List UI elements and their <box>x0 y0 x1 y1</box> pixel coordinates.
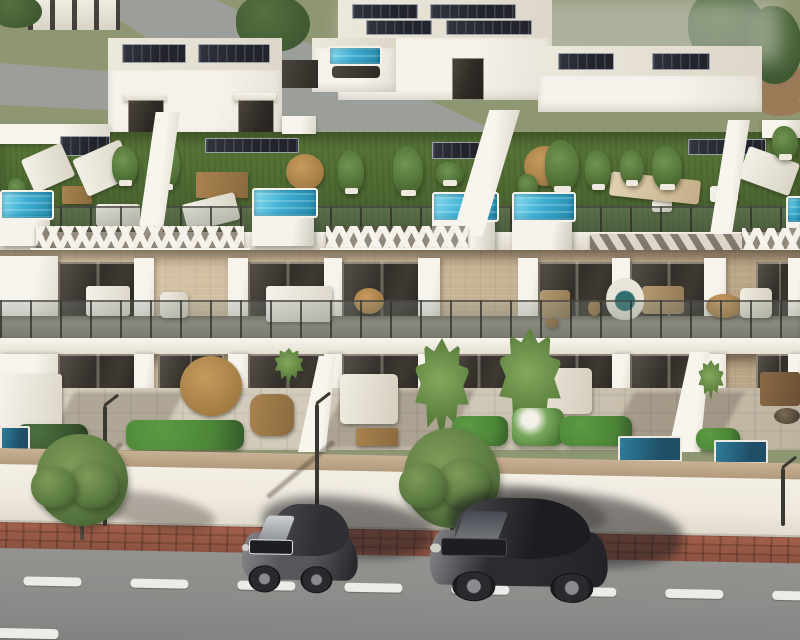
headlight-part <box>242 544 249 552</box>
car-dark-suv <box>429 498 609 599</box>
vehicles <box>0 0 800 640</box>
sidewin-part <box>441 538 507 557</box>
headlight-part <box>430 544 441 553</box>
wheel-part <box>452 571 495 601</box>
wheel-part <box>300 566 333 594</box>
car-gray-hatchback <box>241 505 358 591</box>
sidewin-part <box>249 539 293 555</box>
wheel-part <box>248 565 281 593</box>
architectural-render <box>0 0 800 640</box>
wheel-part <box>550 573 593 603</box>
